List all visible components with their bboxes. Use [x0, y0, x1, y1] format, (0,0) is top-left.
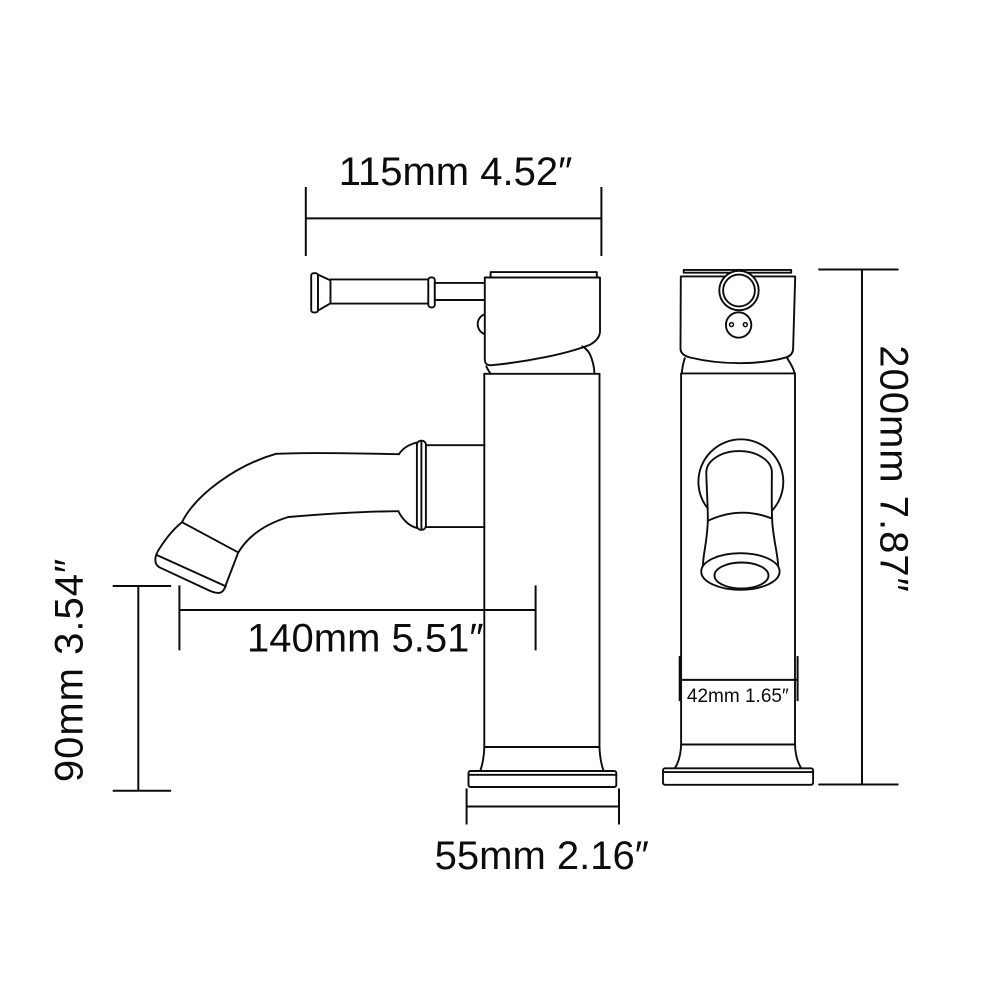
- svg-text:140mm 5.51″: 140mm 5.51″: [247, 617, 484, 661]
- svg-text:55mm 2.16″: 55mm 2.16″: [435, 834, 649, 878]
- svg-text:42mm 1.65″: 42mm 1.65″: [687, 686, 789, 707]
- svg-text:200mm 7.87″: 200mm 7.87″: [872, 345, 916, 593]
- svg-text:90mm 3.54″: 90mm 3.54″: [48, 558, 92, 782]
- svg-text:115mm 4.52″: 115mm 4.52″: [339, 150, 573, 194]
